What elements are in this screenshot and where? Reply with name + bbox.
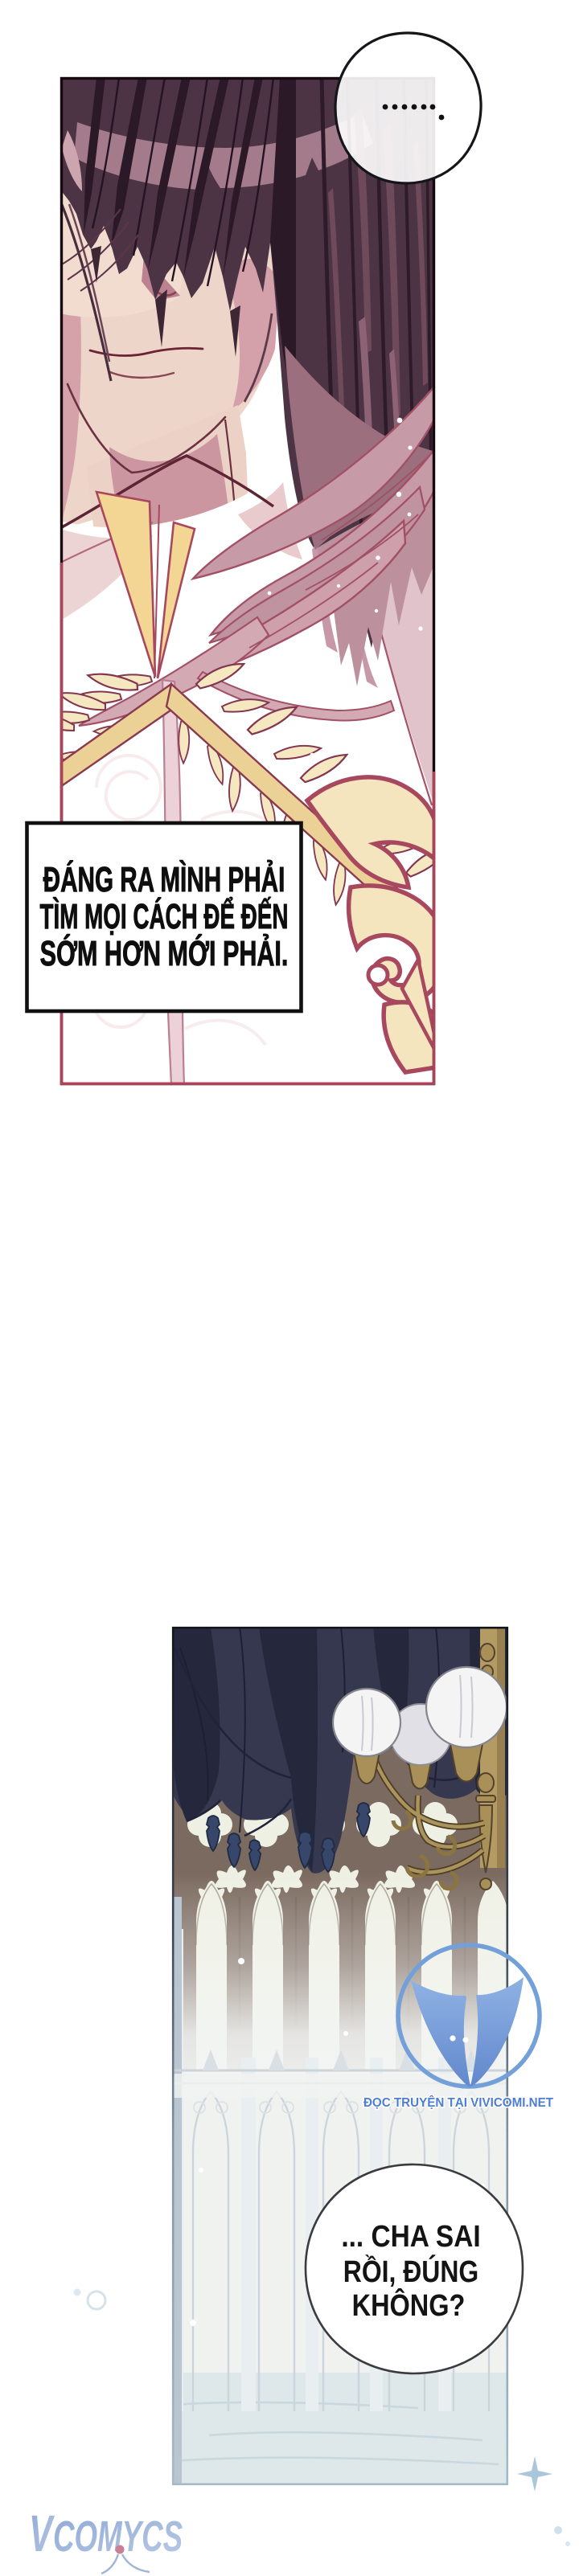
svg-text:V: V — [29, 2504, 55, 2563]
svg-text:KHÔNG?: KHÔNG? — [352, 2288, 466, 2323]
svg-text:SỚM HƠN MỚI PHẢI.: SỚM HƠN MỚI PHẢI. — [40, 932, 289, 973]
svg-text:ĐÁNG RA MÌNH PHẢI: ĐÁNG RA MÌNH PHẢI — [43, 859, 285, 899]
svg-text:... CHA SAI: ... CHA SAI — [341, 2219, 480, 2253]
svg-text:RỒI, ĐÚNG: RỒI, ĐÚNG — [343, 2254, 478, 2288]
svg-text:ĐỌC TRUYỆN TẠI VIVICOMI.NET: ĐỌC TRUYỆN TẠI VIVICOMI.NET — [363, 2095, 554, 2110]
svg-text:TÌM MỌI CÁCH ĐỂ ĐẾN: TÌM MỌI CÁCH ĐỂ ĐẾN — [40, 895, 289, 936]
